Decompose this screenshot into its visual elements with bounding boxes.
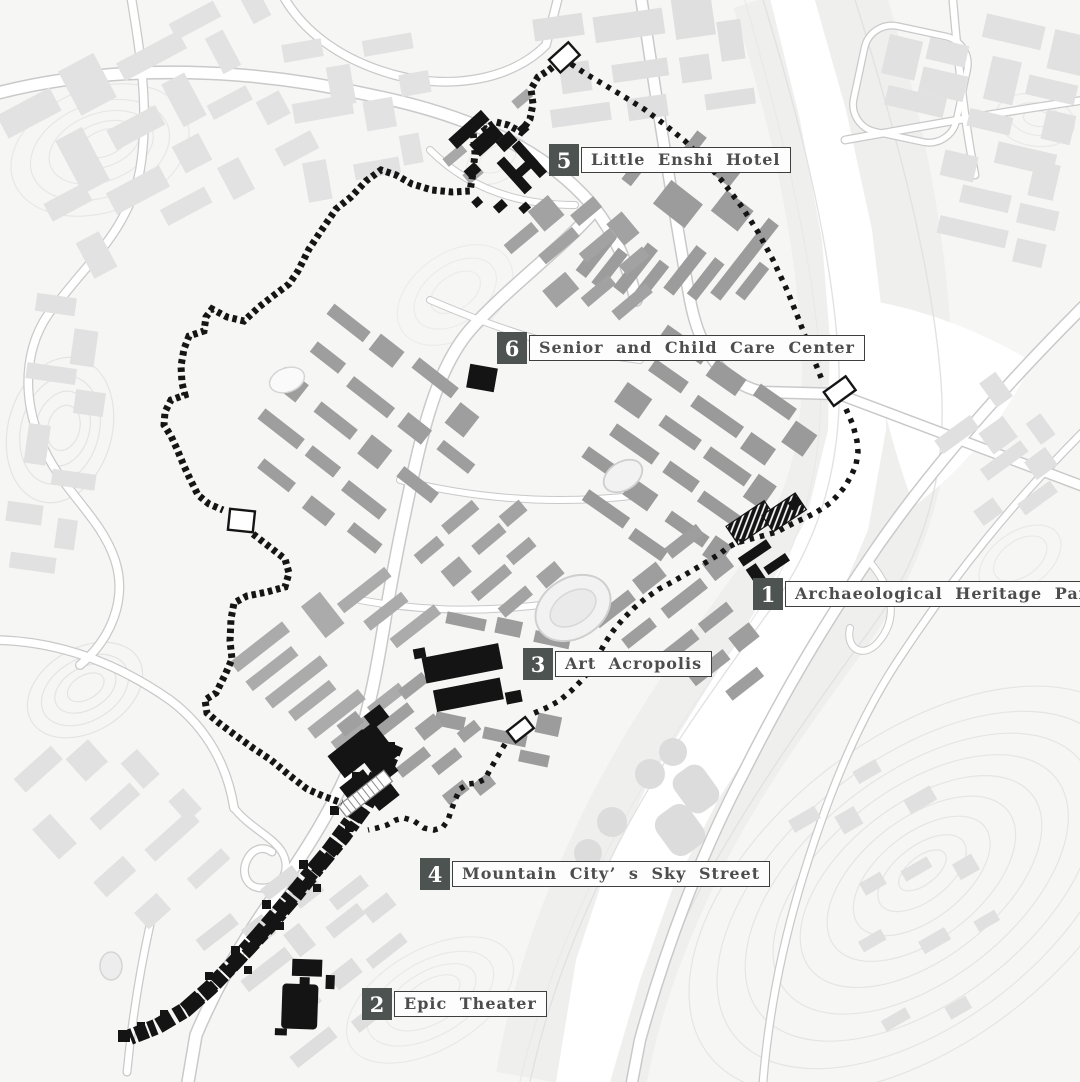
- marker-number-badge: 2: [362, 988, 392, 1020]
- marker-number-badge: 5: [549, 144, 579, 176]
- map-marker-1: 1Archaeological Heritage Park: [753, 578, 1080, 610]
- marker-label-text: Archaeological Heritage Park: [785, 581, 1080, 607]
- map-marker-2: 2Epic Theater: [362, 988, 547, 1020]
- marker-label-text: Epic Theater: [394, 991, 547, 1017]
- marker-label-text: Senior and Child Care Center: [529, 335, 865, 361]
- map-marker-4: 4Mountain City’ s Sky Street: [420, 858, 770, 890]
- site-plan-figure: 1Archaeological Heritage Park2Epic Theat…: [0, 0, 1080, 1082]
- map-marker-6: 6Senior and Child Care Center: [497, 332, 865, 364]
- marker-number-badge: 3: [523, 648, 553, 680]
- marker-number-badge: 4: [420, 858, 450, 890]
- marker-label-text: Mountain City’ s Sky Street: [452, 861, 770, 887]
- marker-number-badge: 1: [753, 578, 783, 610]
- map-marker-3: 3Art Acropolis: [523, 648, 712, 680]
- map-marker-5: 5Little Enshi Hotel: [549, 144, 791, 176]
- marker-number-badge: 6: [497, 332, 527, 364]
- marker-label-text: Little Enshi Hotel: [581, 147, 791, 173]
- marker-label-text: Art Acropolis: [555, 651, 712, 677]
- map-annotations: 1Archaeological Heritage Park2Epic Theat…: [0, 0, 1080, 1082]
